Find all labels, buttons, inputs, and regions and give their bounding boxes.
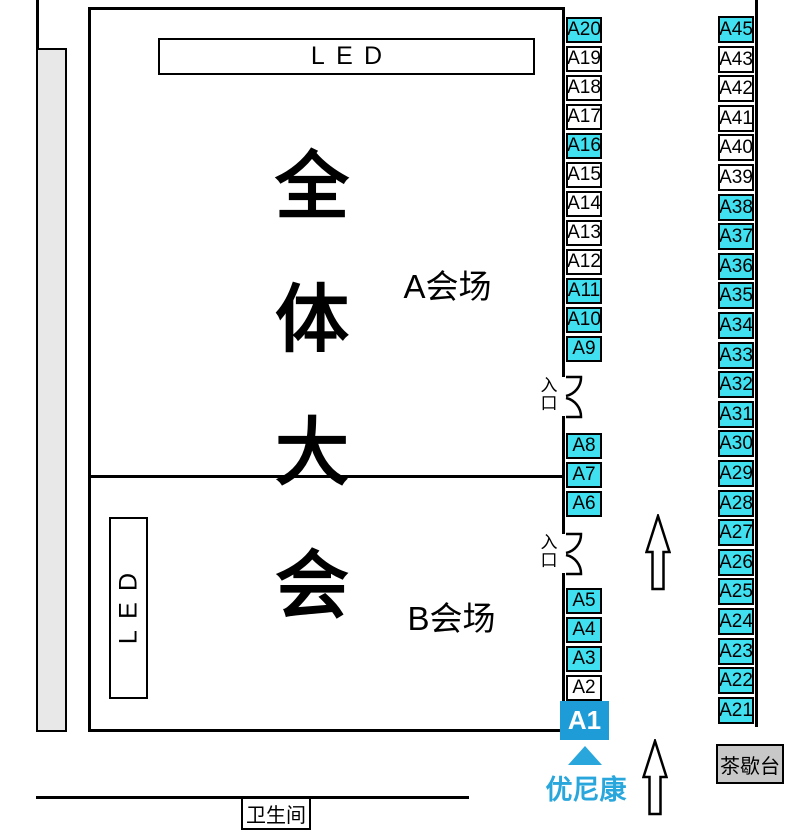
- booth-A2: A2: [566, 675, 602, 701]
- booth-A28: A28: [718, 490, 754, 517]
- pointer-triangle-icon: [568, 746, 602, 765]
- booth-A21: A21: [718, 697, 754, 724]
- hall-title-char-3: 大: [275, 386, 349, 519]
- entrance-1-char-2: 口: [539, 395, 559, 413]
- zone-b-label: B会场: [394, 592, 509, 628]
- booth-A9: A9: [566, 336, 602, 362]
- hall-title: 全 体 大 会: [272, 120, 352, 652]
- booth-A25: A25: [718, 578, 754, 605]
- booth-A1-label: A1: [568, 705, 601, 736]
- booth-A16: A16: [566, 133, 602, 159]
- booth-A19: A19: [566, 46, 602, 72]
- booth-A23: A23: [718, 638, 754, 665]
- booth-A12: A12: [566, 249, 602, 275]
- booth-A26: A26: [718, 549, 754, 576]
- left-wall-line: [36, 0, 39, 48]
- booth-A45: A45: [718, 16, 754, 43]
- booth-A4: A4: [566, 617, 602, 643]
- booth-A14: A14: [566, 191, 602, 217]
- tea-station-label: 茶歇台: [720, 750, 780, 779]
- up-arrow-icon-1: [645, 514, 671, 591]
- door-swing-icon-1: [564, 375, 588, 419]
- booth-A24: A24: [718, 608, 754, 635]
- company-label: 优尼康: [544, 768, 628, 807]
- booth-A5: A5: [566, 588, 602, 614]
- led-screen-side-label: LED: [114, 561, 143, 655]
- booth-A39: A39: [718, 164, 754, 191]
- floor-plan: LED LED 全 体 大 会 A会场 B会场 入 口 入 口 A20A19A1…: [0, 0, 804, 838]
- booth-A41: A41: [718, 105, 754, 132]
- restroom-label: 卫生间: [246, 799, 306, 828]
- led-screen-top: LED: [158, 38, 535, 75]
- booth-A34: A34: [718, 312, 754, 339]
- booth-A13: A13: [566, 220, 602, 246]
- booth-A27: A27: [718, 519, 754, 546]
- booth-A37: A37: [718, 223, 754, 250]
- booth-A3: A3: [566, 646, 602, 672]
- booth-A7: A7: [566, 462, 602, 488]
- booth-A43: A43: [718, 46, 754, 73]
- booth-A30: A30: [718, 430, 754, 457]
- booth-A35: A35: [718, 282, 754, 309]
- entrance-1-char-1: 入: [539, 377, 559, 395]
- booth-A8: A8: [566, 433, 602, 459]
- booth-A31: A31: [718, 401, 754, 428]
- booth-A42: A42: [718, 75, 754, 102]
- booth-A18: A18: [566, 75, 602, 101]
- booth-A22: A22: [718, 667, 754, 694]
- entrance-2-char-1: 入: [539, 534, 559, 552]
- hall-title-char-1: 全: [275, 120, 349, 253]
- booth-A38: A38: [718, 194, 754, 221]
- booth-A11: A11: [566, 278, 602, 304]
- booth-A15: A15: [566, 162, 602, 188]
- booth-A33: A33: [718, 342, 754, 369]
- booth-A32: A32: [718, 371, 754, 398]
- tea-station: 茶歇台: [716, 744, 784, 784]
- led-screen-top-label: LED: [300, 42, 394, 71]
- led-screen-side: LED: [109, 517, 148, 699]
- booth-A1: A1: [560, 701, 609, 740]
- booth-A20: A20: [566, 17, 602, 43]
- hall-title-char-4: 会: [275, 519, 349, 652]
- booth-A10: A10: [566, 307, 602, 333]
- restroom: 卫生间: [241, 797, 311, 830]
- booth-A6: A6: [566, 491, 602, 517]
- booth-A36: A36: [718, 253, 754, 280]
- right-wall-line: [755, 0, 758, 727]
- entrance-2-char-2: 口: [539, 552, 559, 570]
- hall-title-char-2: 体: [275, 253, 349, 386]
- booth-A17: A17: [566, 104, 602, 130]
- side-wall-bar: [36, 48, 67, 732]
- entrance-label-1: 入 口: [539, 377, 559, 413]
- booth-A40: A40: [718, 134, 754, 161]
- entrance-label-2: 入 口: [539, 534, 559, 570]
- up-arrow-icon-2: [642, 739, 668, 816]
- door-swing-icon-2: [564, 532, 588, 576]
- booth-A29: A29: [718, 460, 754, 487]
- zone-a-label: A会场: [390, 260, 505, 296]
